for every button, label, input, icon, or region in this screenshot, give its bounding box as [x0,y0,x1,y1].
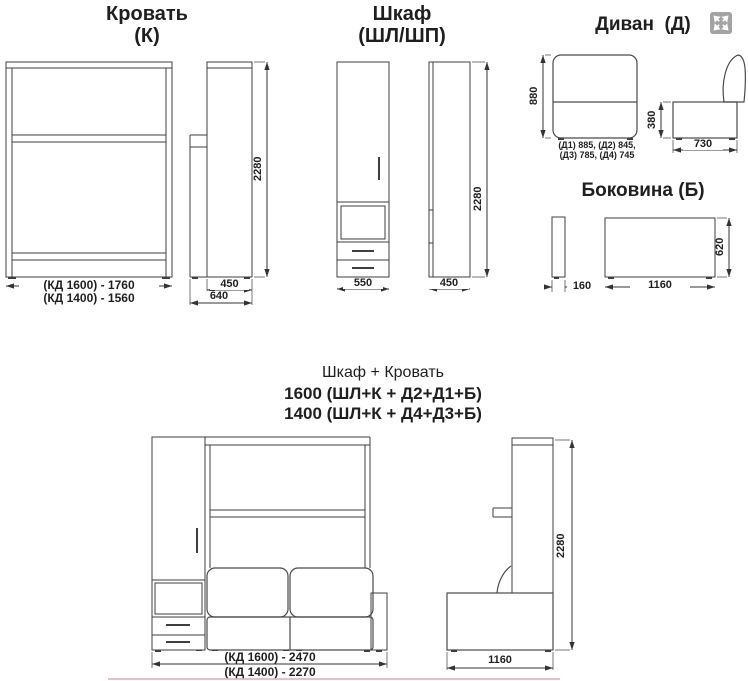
sofa-widths-row2-label: (Д3) 785, (Д4) 745 [549,150,645,160]
bed-height-label: 2280 [251,138,265,200]
sofa-title: Диван (Д) [563,14,723,36]
wardrobe-depth-label: 450 [429,278,469,289]
wardrobe-title: Шкаф [322,3,482,26]
sofa-seat-height-label: 380 [645,90,659,150]
sofa-depth-label: 730 [683,139,723,150]
combo-side-view [447,438,553,652]
wardrobe-side-view [429,62,470,277]
bed-depth-body-label: 450 [210,279,249,290]
progress-bar[interactable] [108,678,560,680]
drawing-sheet: Кровать (К) Шкаф (ШЛ/ШП) Диван (Д) Боков… [0,0,748,681]
sidepanel-height-label: 620 [713,217,727,277]
bed-title: Кровать [67,3,227,26]
wardrobe-dimension-lines [337,62,487,289]
technical-linework [0,0,748,681]
sofa-widths-row1-label: (Д1) 885, (Д2) 845, [549,140,645,150]
wardrobe-width-label: 550 [343,278,383,289]
combo-title: Шкаф + Кровать [233,364,533,382]
bed-front-view [6,62,172,279]
sofa-side-view [673,55,745,140]
combo-front-view [152,437,387,652]
sidepanel-title: Боковина (Б) [553,180,733,202]
combo-width-1600-label: (КД 1600) - 2470 [195,651,345,663]
bed-code: (К) [67,25,227,48]
expand-arrows-icon [710,12,732,34]
sofa-height-label: 880 [527,66,541,126]
wardrobe-code: (ШЛ/ШП) [322,25,482,48]
sofa-front-view [553,55,637,140]
combo-variant-1400: 1400 (ШЛ+К + Д4+Д3+Б) [233,404,533,424]
wardrobe-height-label: 2280 [471,168,485,230]
sidepanel-views [552,217,715,279]
bed-dimension-lines [6,62,267,305]
wardrobe-front-view [337,62,389,277]
bed-side-view [190,62,252,279]
combo-variant-1600: 1600 (ШЛ+К + Д2+Д1+Б) [233,384,533,404]
sidepanel-length-label: 1160 [630,280,690,291]
expand-button[interactable] [710,12,732,34]
combo-height-label: 2280 [554,515,568,577]
combo-width-1400-label: (КД 1400) - 2270 [195,666,345,678]
bed-width-1600-label: (КД 1600) - 1760 [19,279,159,291]
combo-dimension-lines [152,440,572,670]
combo-depth-label: 1160 [470,655,530,666]
bed-width-1400-label: (КД 1400) - 1560 [19,292,159,304]
bed-depth-total-label: 640 [201,291,237,302]
sidepanel-thickness-label: 160 [567,281,597,292]
